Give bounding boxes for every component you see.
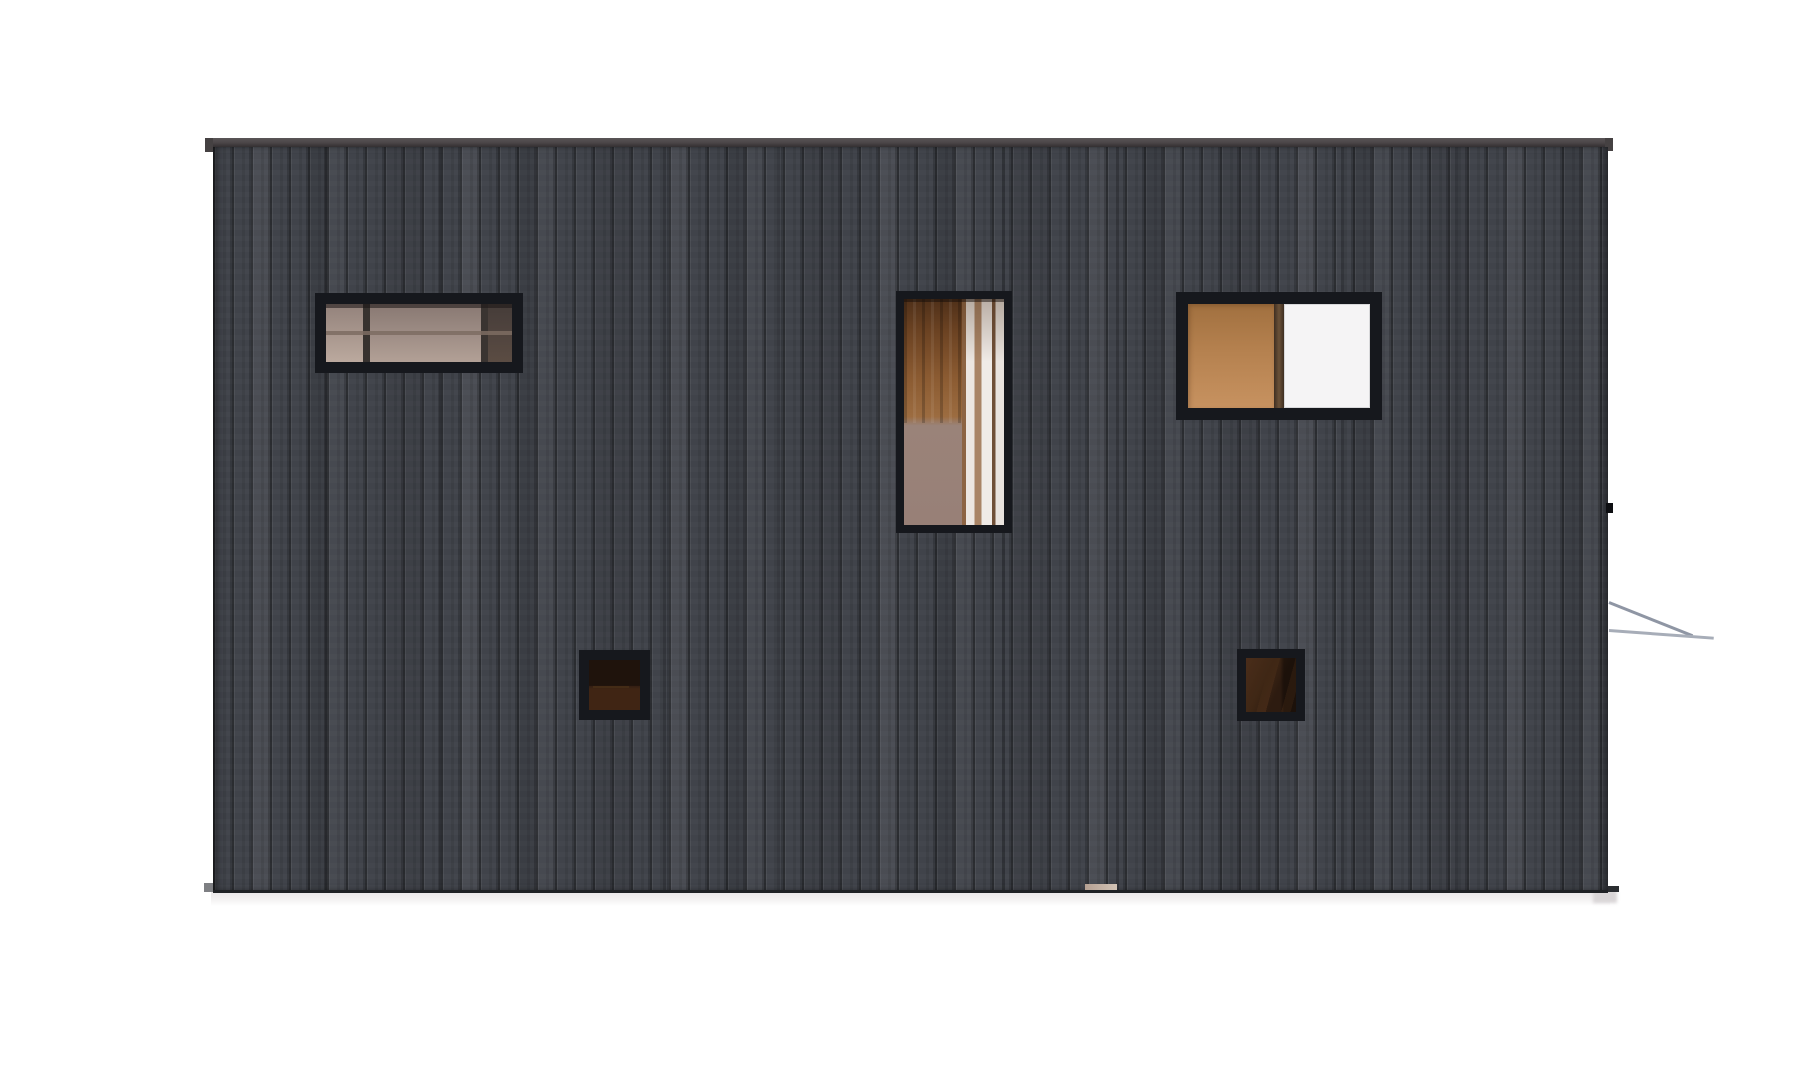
window-clerestory-left-glass: [326, 304, 512, 362]
interior-wood-and-mauve-wall: [904, 299, 962, 525]
window-upper-right: [1176, 292, 1382, 420]
wall-bracket-icon: [1606, 503, 1613, 513]
threshold-sliver: [1085, 884, 1117, 890]
roof-fascia: [205, 138, 1613, 147]
corner-stub-right: [1608, 886, 1619, 892]
glass-top-shade: [326, 304, 512, 308]
white-pane: [1284, 304, 1370, 408]
window-small-lower-right-glass: [1246, 658, 1296, 712]
interior-furniture-edge: [593, 686, 629, 688]
interior-curtain-folds: [962, 299, 1004, 525]
window-tall-center: [896, 291, 1012, 533]
tan-pane: [1188, 304, 1274, 408]
glazing-bar-horizontal: [326, 331, 512, 335]
window-clerestory-left: [315, 293, 523, 373]
window-tall-center-glass: [904, 299, 1004, 525]
wood-slat-streaks: [904, 299, 962, 423]
window-small-lower-left: [579, 650, 650, 720]
glass-top-shade: [904, 299, 1004, 302]
roof-end-cap-left: [205, 138, 213, 152]
elevation-scene: [0, 0, 1800, 1080]
curtain-top-shade: [962, 299, 1004, 362]
window-upper-right-glass: [1188, 304, 1370, 408]
building-facade-siding: [213, 147, 1608, 893]
window-small-lower-right: [1237, 649, 1305, 721]
window-small-lower-left-glass: [589, 660, 640, 710]
handrail-horizontal-line: [1609, 629, 1714, 640]
window-mullion: [1274, 304, 1285, 408]
